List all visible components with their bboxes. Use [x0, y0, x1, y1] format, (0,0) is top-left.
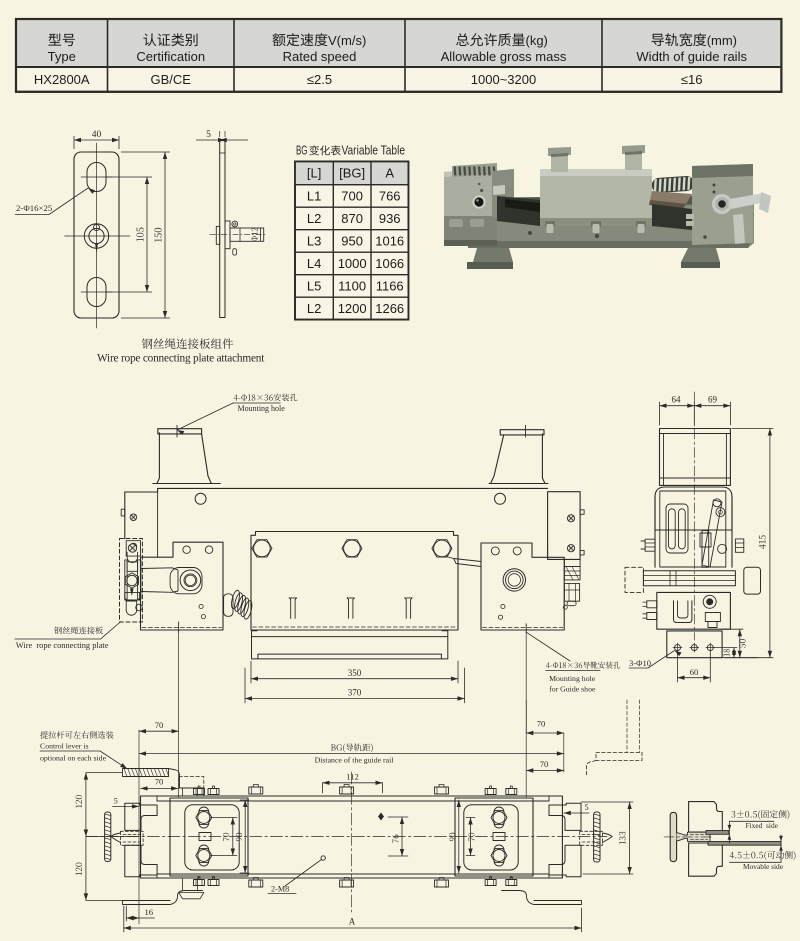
svg-text:350: 350 — [348, 668, 362, 678]
svg-text:60: 60 — [690, 667, 699, 677]
svg-text:Mounting hole: Mounting hole — [238, 404, 286, 413]
svg-text:Control lever is: Control lever is — [40, 742, 89, 751]
svg-text:L1: L1 — [307, 188, 321, 203]
svg-text:[L]: [L] — [307, 166, 321, 181]
svg-text:GB/CE: GB/CE — [151, 72, 192, 87]
svg-text:1066: 1066 — [375, 256, 404, 271]
svg-text:A: A — [385, 166, 394, 181]
svg-text:Type: Type — [48, 49, 76, 64]
svg-text:70: 70 — [155, 720, 164, 730]
svg-text:1000~3200: 1000~3200 — [471, 72, 536, 87]
svg-text:70: 70 — [155, 777, 164, 787]
svg-text:BG: BG — [296, 144, 308, 158]
svg-text:≤2.5: ≤2.5 — [307, 72, 332, 87]
svg-text:1266: 1266 — [375, 301, 404, 316]
svg-text:936: 936 — [379, 211, 401, 226]
svg-text:Movable side: Movable side — [743, 862, 784, 871]
svg-text:HX2800A: HX2800A — [34, 72, 90, 87]
svg-text:A: A — [349, 917, 356, 927]
svg-text:≤16: ≤16 — [681, 72, 703, 87]
svg-text:5: 5 — [206, 130, 211, 140]
svg-text:(kg): (kg) — [526, 33, 548, 48]
svg-text:3-Φ10: 3-Φ10 — [629, 658, 651, 668]
svg-text:L2: L2 — [307, 211, 321, 226]
svg-text:112: 112 — [346, 772, 359, 782]
svg-text:64: 64 — [672, 395, 682, 405]
svg-text:2-Φ16×25: 2-Φ16×25 — [16, 203, 53, 213]
svg-text:70: 70 — [537, 719, 546, 729]
svg-text:1016: 1016 — [375, 233, 404, 248]
svg-text:[BG]: [BG] — [339, 166, 365, 181]
svg-text:V(m/s): V(m/s) — [328, 33, 366, 48]
svg-text:L2: L2 — [307, 301, 321, 316]
svg-text:5: 5 — [584, 803, 588, 812]
svg-text:Allowable gross mass: Allowable gross mass — [441, 49, 567, 64]
svg-text:950: 950 — [341, 233, 363, 248]
svg-text:L3: L3 — [307, 233, 321, 248]
svg-text:370: 370 — [348, 688, 362, 698]
svg-text:Wire rope connecting plate: Wire rope connecting plate — [16, 641, 109, 650]
svg-text:for Guide shoe: for Guide shoe — [549, 685, 596, 694]
svg-text:16: 16 — [145, 907, 154, 917]
svg-text:Width of guide rails: Width of guide rails — [636, 49, 747, 64]
svg-text:Rated speed: Rated speed — [283, 49, 357, 64]
svg-text:Mounting hole: Mounting hole — [549, 674, 596, 683]
svg-text:Variable Table: Variable Table — [342, 144, 406, 158]
svg-text:optional on each side: optional on each side — [40, 754, 107, 763]
svg-text:766: 766 — [379, 188, 401, 203]
svg-text:Wire rope connecting plate att: Wire rope connecting plate attachment — [97, 353, 265, 365]
svg-text:L5: L5 — [307, 278, 321, 293]
svg-text:Fixed side: Fixed side — [746, 821, 779, 830]
svg-text:700: 700 — [341, 188, 363, 203]
svg-text:5: 5 — [114, 797, 118, 806]
svg-text:70: 70 — [540, 759, 549, 769]
svg-text:(mm): (mm) — [707, 33, 737, 48]
svg-text:Distance of the guide rail: Distance of the guide rail — [315, 756, 395, 765]
svg-text:1200: 1200 — [338, 301, 367, 316]
svg-text:Certification: Certification — [136, 49, 205, 64]
svg-text:1166: 1166 — [376, 278, 404, 293]
svg-text:1000: 1000 — [338, 256, 367, 271]
svg-text:69: 69 — [708, 395, 718, 405]
svg-text:L4: L4 — [307, 256, 321, 271]
svg-text:40: 40 — [92, 130, 102, 140]
svg-text:870: 870 — [341, 211, 363, 226]
svg-text:1100: 1100 — [338, 278, 366, 293]
svg-text:2-M8: 2-M8 — [271, 885, 289, 894]
